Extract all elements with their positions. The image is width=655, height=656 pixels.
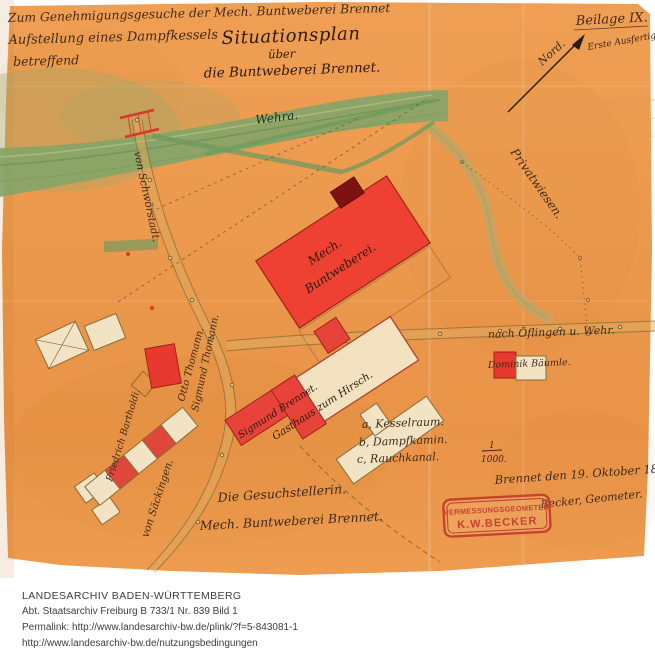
archive-reference: Abt. Staatsarchiv Freiburg B 733/1 Nr. 8… [22,604,298,620]
scale-denominator: 1000. [481,455,507,465]
request-line3: betreffend [13,52,79,69]
archive-name: LANDESARCHIV BADEN-WÜRTTEMBERG [22,588,298,604]
archive-terms-url: http://www.landesarchiv-bw.de/nutzungsbe… [22,636,298,652]
archive-permalink: Permalink: http://www.landesarchiv-bw.de… [22,620,298,636]
archive-scan-page: Mech. Buntweberei. Sigmund Brennet. Gast… [0,0,655,656]
map-title-sub: über [268,46,297,61]
archive-caption: LANDESARCHIV BADEN-WÜRTTEMBERG Abt. Staa… [22,588,298,652]
situationsplan-map-scan: Mech. Buntweberei. Sigmund Brennet. Gast… [0,0,655,584]
legend: a, Kesselraum. b, Dampfkamin. c, Rauchka… [357,415,448,466]
surveyor-stamp: VERMESSUNGSGEOMETER K.W.BECKER [443,494,551,537]
building-otto [145,344,181,389]
scale-numerator: 1 [489,441,495,451]
